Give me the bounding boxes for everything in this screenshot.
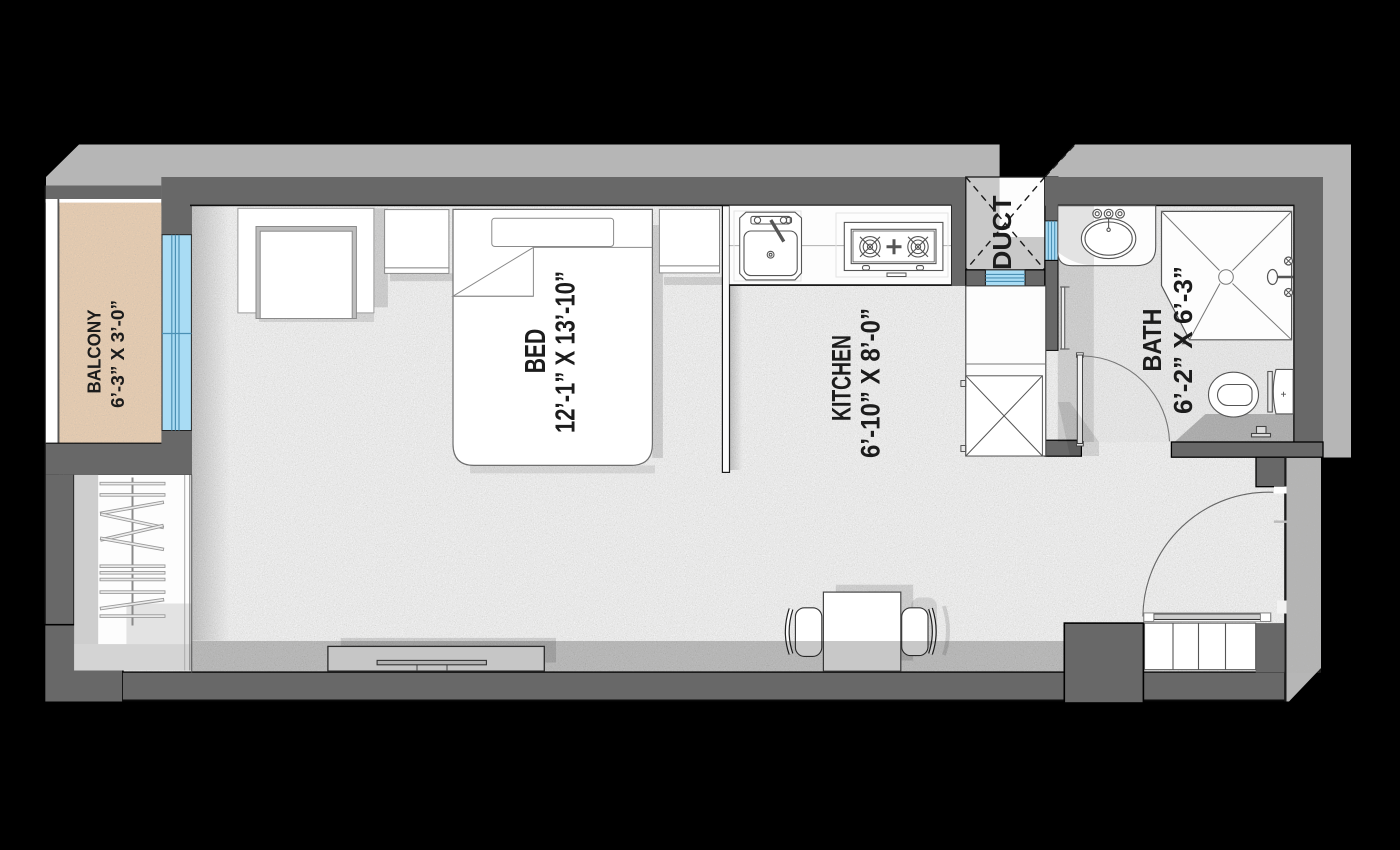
svg-text:BED: BED	[520, 329, 552, 374]
svg-text:BATH: BATH	[1137, 309, 1167, 372]
svg-text:DUCT: DUCT	[987, 195, 1017, 270]
svg-text:6’-3” X 3’-0”: 6’-3” X 3’-0”	[107, 300, 128, 408]
svg-text:BALCONY: BALCONY	[84, 309, 105, 393]
svg-text:6’-2” X 6’-3”: 6’-2” X 6’-3”	[1168, 266, 1198, 414]
svg-text:KITCHEN: KITCHEN	[827, 335, 857, 421]
svg-text:12’-1” X 13’-10”: 12’-1” X 13’-10”	[550, 271, 581, 433]
svg-text:6’-10” X 8’-0”: 6’-10” X 8’-0”	[856, 308, 886, 458]
